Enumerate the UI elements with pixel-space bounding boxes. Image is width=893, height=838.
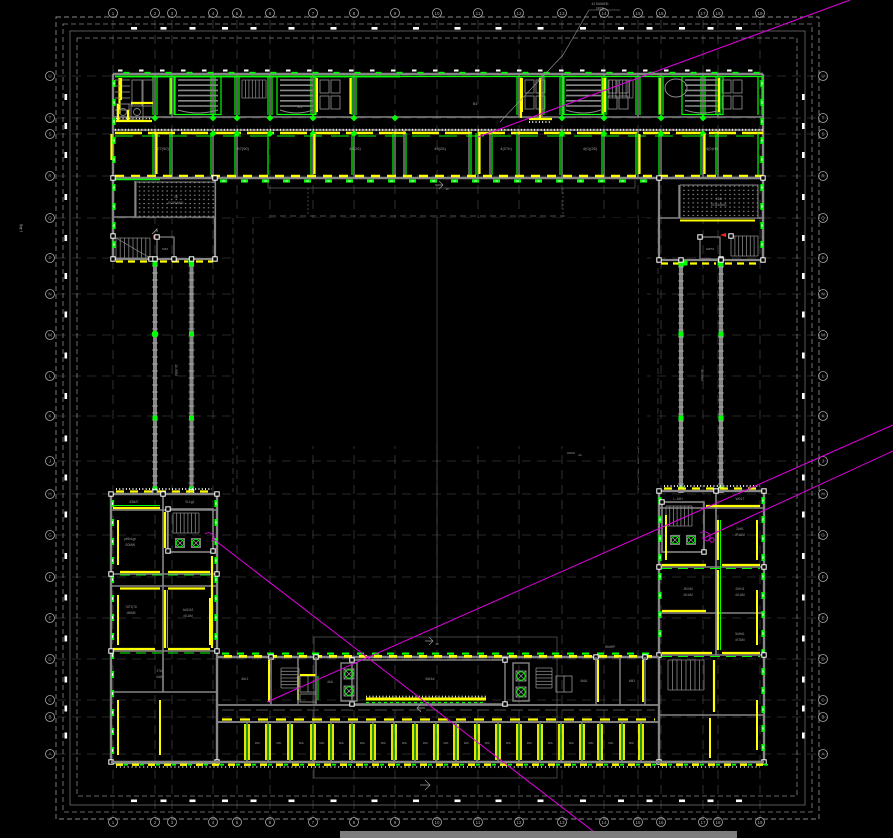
svg-text:#M1: #M1	[629, 679, 635, 683]
svg-text:M#L: M#L	[299, 741, 305, 745]
svg-text:B4: B4	[473, 102, 477, 106]
svg-text:17: 17	[700, 820, 706, 825]
svg-text:N: N	[48, 292, 51, 297]
svg-text:Q: Q	[48, 216, 52, 221]
svg-text:/20MW: /20MW	[125, 543, 135, 547]
svg-text:4A: 4A	[578, 453, 582, 457]
svg-text:M#L: M#L	[569, 741, 575, 745]
svg-text:16: 16	[658, 11, 664, 16]
svg-text:M#L: M#L	[276, 741, 282, 745]
svg-text:18: 18	[715, 11, 721, 16]
svg-text:U: U	[821, 74, 824, 79]
svg-text:S: S	[48, 132, 51, 137]
svg-text:/#1AM: /#1AM	[735, 593, 745, 597]
svg-text:19: 19	[757, 820, 763, 825]
svg-text:1£: 1£	[174, 195, 178, 199]
svg-text:S: S	[821, 132, 824, 137]
svg-text:M#L: M#L	[360, 741, 366, 745]
svg-text:/#1AM: /#1AM	[183, 614, 193, 618]
svg-text:B7(90): B7(90)	[237, 146, 250, 151]
svg-text:10: 10	[434, 820, 440, 825]
svg-text:EO#1#A#1: EO#1#A#1	[168, 201, 184, 205]
svg-text:U: U	[48, 74, 51, 79]
svg-text:12: 12	[516, 11, 522, 16]
svg-text:10: 10	[434, 11, 440, 16]
svg-text:16: 16	[658, 820, 664, 825]
svg-text:11: 11	[476, 11, 481, 16]
svg-text:F: F	[49, 575, 52, 580]
svg-text:J: J	[822, 459, 824, 464]
svg-text:EO#1#A#1: EO#1#A#1	[711, 203, 727, 207]
svg-text:14: 14	[601, 820, 607, 825]
svg-text:1# /#6M: 1# /#6M	[174, 364, 178, 376]
svg-text:p#5x1gx: p#5x1gx	[124, 537, 136, 541]
svg-text:/P1AM: /P1AM	[735, 533, 745, 537]
svg-text:T: T	[49, 116, 52, 121]
svg-text:K: K	[821, 414, 824, 419]
svg-text:/#AM: /#AM	[156, 675, 164, 679]
svg-text:M#L: M#L	[381, 741, 387, 745]
svg-text:12: 12	[516, 820, 522, 825]
svg-text:M/PM: M/PM	[706, 247, 714, 251]
svg-text:L-1#H: L-1#H	[673, 497, 683, 501]
svg-text:T: T	[822, 116, 825, 121]
svg-text:17: 17	[700, 11, 706, 16]
svg-text:27#1: 27#1	[156, 669, 163, 673]
svg-text:M#L: M#L	[548, 741, 554, 745]
svg-text:/#TAM: /#TAM	[735, 638, 744, 642]
svg-text:W#WP: W#WP	[605, 645, 615, 649]
svg-text:15: 15	[635, 820, 641, 825]
svg-text:19: 19	[757, 11, 763, 16]
svg-text:4(0)(26): 4(0)(26)	[583, 146, 598, 151]
svg-text:14: 14	[601, 11, 607, 16]
svg-text:4#: 4#	[445, 187, 449, 191]
svg-text:N: N	[821, 292, 824, 297]
svg-text:1# /#6M: 1# /#6M	[700, 369, 704, 381]
svg-text:M#L: M#L	[255, 741, 261, 745]
svg-text:H: H	[48, 492, 51, 497]
svg-text:5#H#1: 5#H#1	[735, 632, 745, 636]
svg-text:M#L: M#L	[423, 741, 429, 745]
svg-text:M#L: M#L	[485, 741, 491, 745]
svg-text:13: 13	[559, 11, 565, 16]
svg-text:#1 D#6#EM: #1 D#6#EM	[592, 2, 609, 6]
svg-text:M/M: M/M	[162, 247, 168, 251]
svg-text:M#L: M#L	[608, 741, 614, 745]
svg-text:M#L: M#L	[527, 741, 533, 745]
svg-text:F: F	[822, 575, 825, 580]
svg-text:43A/C: 43A/C	[129, 500, 139, 504]
svg-text:K: K	[48, 414, 51, 419]
svg-text:P: P	[821, 256, 824, 261]
svg-text:G: G	[821, 533, 825, 538]
svg-text:M#1#: M#1#	[426, 677, 435, 681]
svg-text:M#L: M#L	[402, 741, 408, 745]
svg-text:M#L: M#L	[506, 741, 512, 745]
svg-text:G: G	[48, 533, 52, 538]
svg-text:4#A: 4#A	[327, 680, 334, 684]
svg-text:1£A: 1£A	[716, 197, 723, 201]
svg-text:15: 15	[635, 11, 641, 16]
svg-text:A#111£: A#111£	[183, 608, 194, 612]
svg-text:##L1: ##L1	[241, 677, 248, 681]
svg-text:27(90): 27(90)	[157, 146, 169, 151]
svg-text:7#T1|7#: 7#T1|7#	[125, 605, 137, 609]
svg-text:B: B	[48, 715, 51, 720]
svg-text:4#: 4#	[435, 642, 439, 646]
svg-text:A: A	[48, 752, 51, 757]
svg-text:45(26): 45(26)	[434, 146, 446, 151]
svg-text:45(26): 45(26)	[349, 146, 361, 151]
svg-text:E: E	[48, 616, 51, 621]
svg-text:M#L: M#L	[464, 741, 470, 745]
svg-text:B-1g1: B-1g1	[185, 500, 194, 504]
svg-text:13: 13	[559, 820, 565, 825]
svg-text:4#A1: 4#A1	[580, 679, 588, 683]
svg-text:a-1: a-1	[297, 105, 302, 109]
svg-text:18: 18	[715, 820, 721, 825]
svg-text:M: M	[48, 333, 52, 338]
svg-text:11: 11	[476, 820, 481, 825]
svg-text:b#7B: b#7B	[596, 7, 603, 11]
svg-text:A: A	[821, 752, 824, 757]
svg-text:E: E	[821, 616, 824, 621]
svg-text:2#H11: 2#H11	[735, 587, 744, 591]
svg-text:Q: Q	[821, 216, 825, 221]
svg-text:M#L: M#L	[629, 741, 635, 745]
svg-text:P: P	[48, 256, 51, 261]
svg-text:|-1b]: |-1b]	[19, 224, 23, 231]
svg-text:/#1AM: /#1AM	[683, 593, 693, 597]
svg-text:JM M4: JM M4	[683, 587, 693, 591]
svg-text:M#L: M#L	[339, 741, 345, 745]
svg-text:H: H	[821, 492, 824, 497]
svg-text:J: J	[49, 459, 51, 464]
svg-text:2#H1: 2#H1	[736, 527, 744, 531]
svg-text:M#L: M#L	[443, 741, 449, 745]
svg-text:4(0)H1: 4(0)H1	[706, 146, 719, 151]
svg-text:B: B	[821, 715, 824, 720]
svg-text:/#66M: /#66M	[127, 611, 136, 615]
svg-text:W01T: W01T	[735, 497, 744, 501]
svg-text:M#L: M#L	[588, 741, 594, 745]
svg-text:4(07b): 4(07b)	[500, 146, 512, 151]
svg-text:M#L: M#L	[319, 741, 325, 745]
svg-text:M: M	[821, 333, 825, 338]
